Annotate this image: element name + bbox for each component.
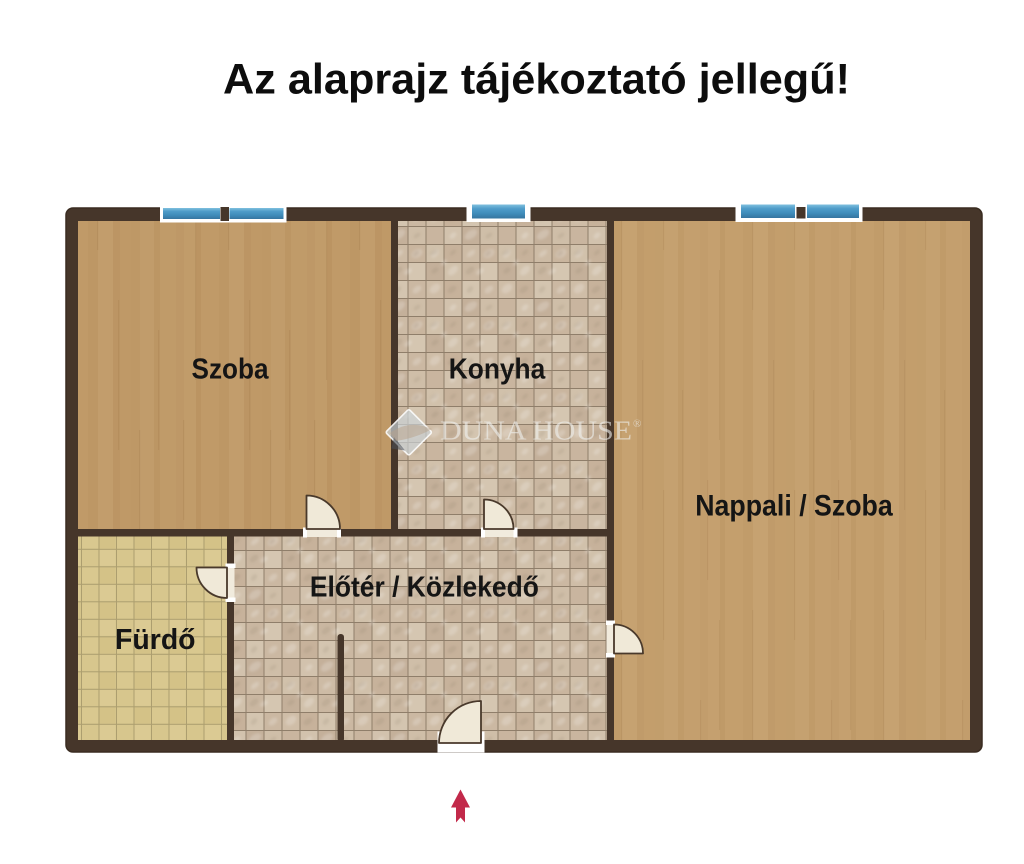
svg-text:Az alaprajz tájékoztató jelleg: Az alaprajz tájékoztató jellegű! (223, 56, 850, 104)
svg-text:DUNA HOUSE: DUNA HOUSE (440, 416, 632, 446)
svg-text:Fürdő: Fürdő (115, 624, 196, 656)
svg-text:Nappali / Szoba: Nappali / Szoba (695, 490, 893, 523)
svg-text:Előtér / Közlekedő: Előtér / Közlekedő (310, 572, 539, 604)
svg-text:Konyha: Konyha (449, 354, 546, 386)
svg-text:Szoba: Szoba (192, 354, 270, 386)
svg-text:®: ® (633, 418, 641, 430)
